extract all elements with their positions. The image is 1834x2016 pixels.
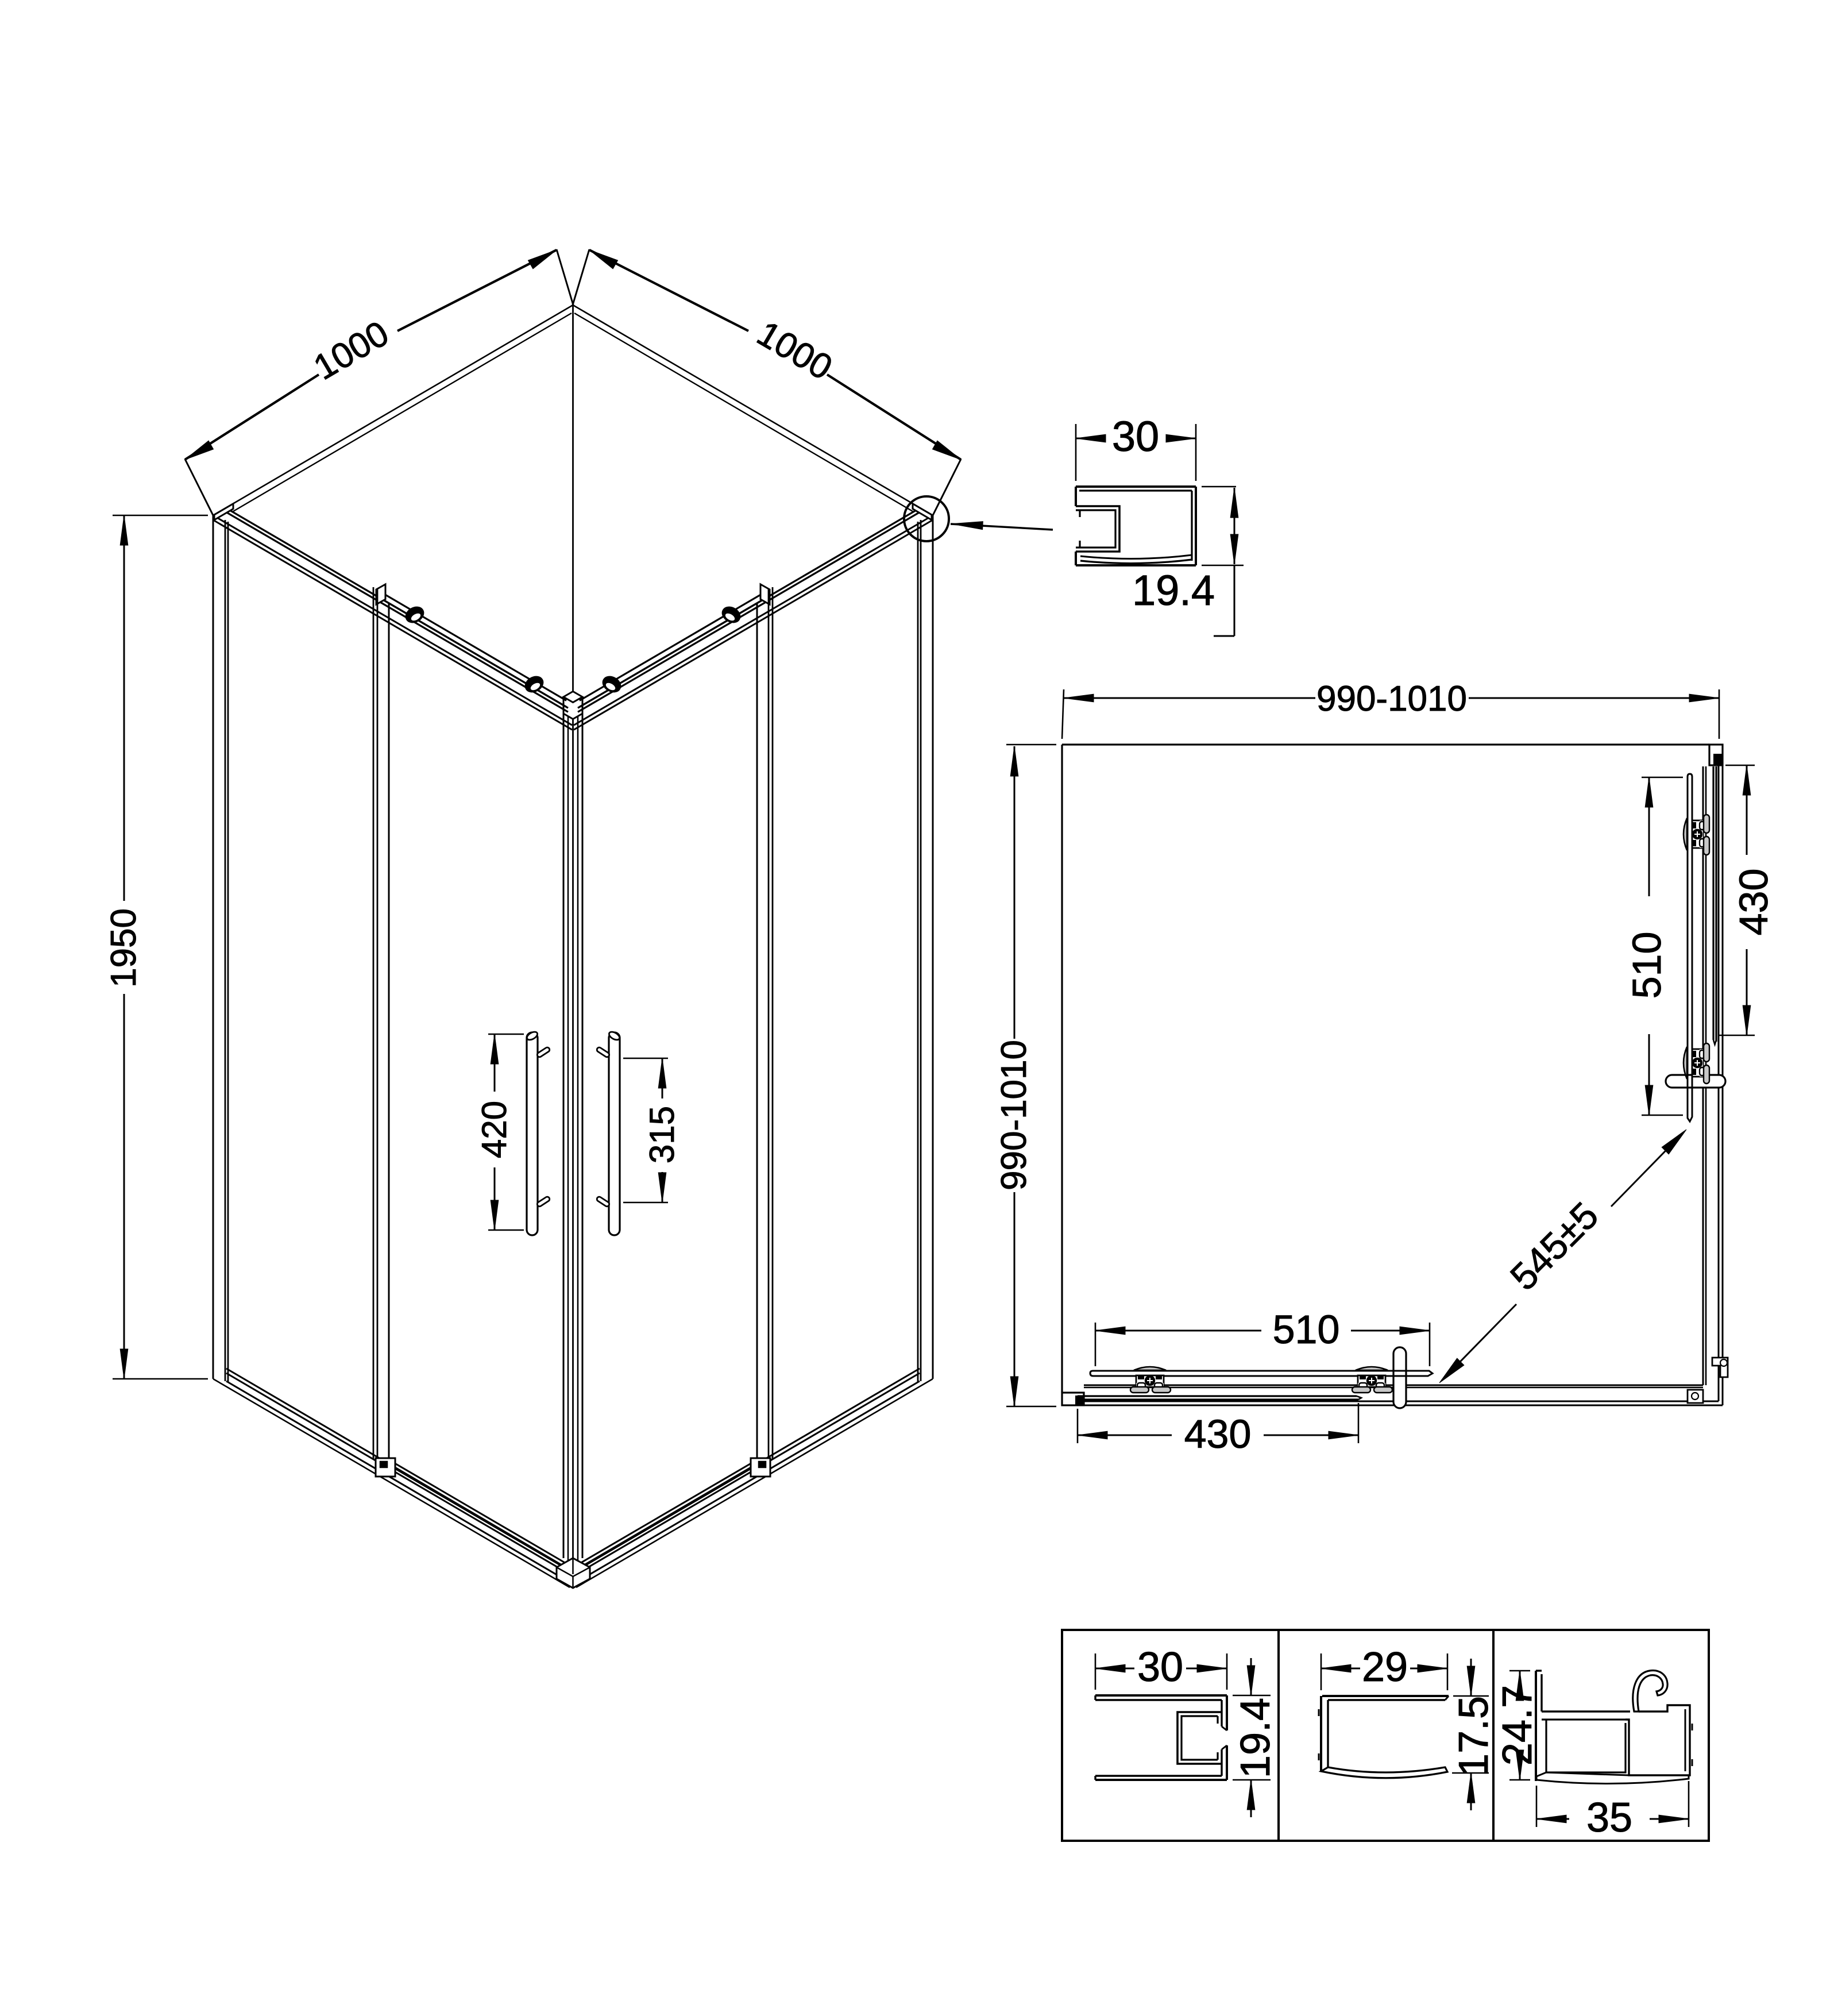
svg-text:19.4: 19.4 <box>1233 1698 1279 1778</box>
svg-text:24.7: 24.7 <box>1495 1685 1540 1766</box>
svg-text:510: 510 <box>1624 932 1669 999</box>
svg-text:510: 510 <box>1273 1307 1340 1352</box>
svg-text:17.5: 17.5 <box>1451 1696 1497 1776</box>
svg-text:29: 29 <box>1362 1644 1408 1690</box>
svg-text:35: 35 <box>1586 1795 1632 1841</box>
svg-text:315: 315 <box>643 1106 681 1163</box>
svg-text:420: 420 <box>475 1101 513 1158</box>
svg-text:1950: 1950 <box>104 908 144 988</box>
svg-text:990-1010: 990-1010 <box>994 1040 1034 1190</box>
svg-text:990-1010: 990-1010 <box>1316 679 1467 719</box>
svg-text:30: 30 <box>1112 413 1159 460</box>
svg-text:19.4: 19.4 <box>1132 566 1215 614</box>
svg-text:30: 30 <box>1137 1644 1183 1690</box>
svg-text:430: 430 <box>1184 1412 1252 1456</box>
svg-text:430: 430 <box>1731 869 1776 936</box>
